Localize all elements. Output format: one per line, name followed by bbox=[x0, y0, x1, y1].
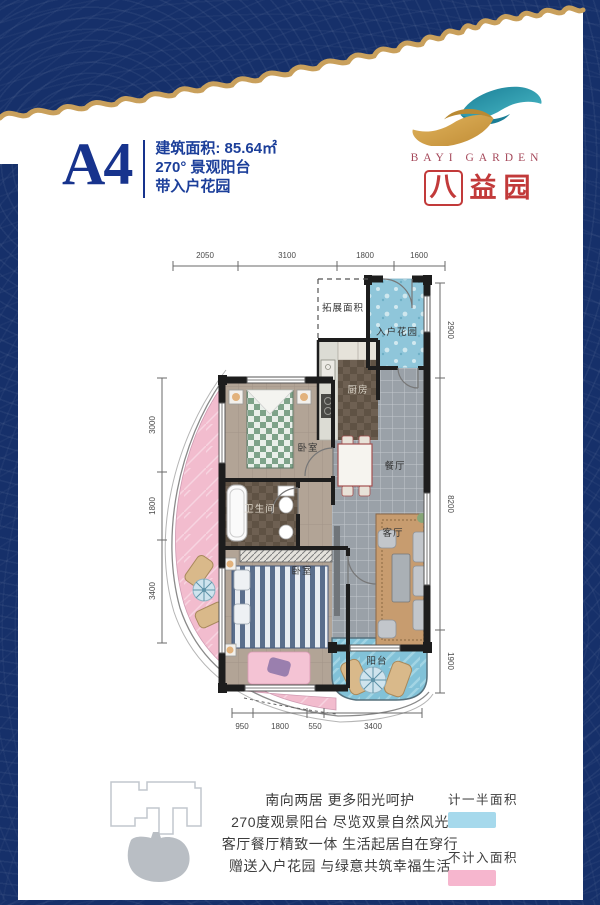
svg-text:550: 550 bbox=[308, 722, 322, 731]
legend-item-half-area: 计一半面积 bbox=[448, 789, 518, 833]
marketing-copy: 南向两居 更多阳光呵护 270度观景阳台 尽览双景自然风光 客厅餐厅精致一体 生… bbox=[205, 789, 475, 877]
brand-name-cn: 八 益 园 bbox=[388, 170, 566, 206]
svg-text:8200: 8200 bbox=[446, 495, 455, 513]
marketing-line-4: 赠送入户花园 与绿意共筑幸福生活 bbox=[205, 855, 475, 877]
brand-name-en: BAYI GARDEN bbox=[388, 152, 566, 164]
legend-swatch-excluded-area bbox=[448, 870, 496, 886]
armchair-icon bbox=[378, 620, 396, 638]
brand-logo: BAYI GARDEN 八 益 园 bbox=[388, 80, 566, 206]
room-label-bathroom: 卫生间 bbox=[244, 503, 276, 515]
floorplan-poster: { "brand": { "name_en": "BAYI GARDEN", "… bbox=[0, 0, 600, 900]
dimension-bottom bbox=[232, 708, 422, 718]
dimension-right-labels: 2900 8200 1900 bbox=[446, 321, 455, 670]
legend-label-half-area: 计一半面积 bbox=[448, 789, 518, 808]
brand-cn-char1: 八 bbox=[424, 170, 463, 206]
unit-area: 建筑面积: 85.64㎡ bbox=[155, 139, 277, 158]
tv-cabinet-icon bbox=[334, 526, 340, 616]
svg-text:950: 950 bbox=[235, 722, 249, 731]
dimension-right bbox=[435, 283, 445, 693]
unit-feature-1: 270° 景观阳台 bbox=[155, 158, 277, 177]
room-label-bedroom-top: 卧室 bbox=[297, 442, 318, 454]
marketing-line-2: 270度观景阳台 尽览双景自然风光 bbox=[205, 811, 475, 833]
brand-cn-char3: 园 bbox=[504, 175, 531, 202]
coffee-table-icon bbox=[392, 554, 410, 602]
svg-text:1800: 1800 bbox=[356, 251, 374, 260]
marketing-line-1: 南向两居 更多阳光呵护 bbox=[205, 789, 475, 811]
room-label-kitchen: 厨房 bbox=[347, 384, 368, 396]
floorplan-drawing: 2050 3100 1800 1600 3000 1800 3400 2900 … bbox=[140, 248, 500, 768]
unit-feature-2: 带入户花园 bbox=[155, 177, 277, 196]
legend-item-excluded-area: 不计入面积 bbox=[448, 847, 518, 891]
svg-text:1800: 1800 bbox=[148, 497, 157, 515]
svg-text:1600: 1600 bbox=[410, 251, 428, 260]
kitchen-dark-floor bbox=[338, 360, 378, 440]
room-label-expand: 拓展面积 bbox=[322, 302, 364, 314]
gold-leaf-icon bbox=[412, 115, 493, 146]
dimension-left bbox=[157, 378, 167, 643]
unit-title-block: A4 建筑面积: 85.64㎡ 270° 景观阳台 带入户花园 bbox=[62, 136, 277, 198]
legend-label-excluded-area: 不计入面积 bbox=[448, 847, 518, 866]
dimension-top bbox=[173, 261, 445, 271]
dimension-top-labels: 2050 3100 1800 1600 bbox=[196, 251, 428, 260]
wardrobe-icon bbox=[240, 550, 332, 562]
svg-text:3000: 3000 bbox=[148, 416, 157, 434]
building-outline bbox=[111, 782, 201, 834]
marketing-line-3: 客厅餐厅精致一体 生活起居自在穿行 bbox=[205, 833, 475, 855]
room-label-dining: 餐厅 bbox=[384, 460, 405, 472]
svg-text:1800: 1800 bbox=[271, 722, 289, 731]
room-label-balcony: 阳台 bbox=[366, 655, 387, 667]
room-label-entry-garden: 入户花园 bbox=[376, 326, 418, 338]
leaf-logo-icon bbox=[402, 80, 552, 146]
svg-text:3100: 3100 bbox=[278, 251, 296, 260]
dimension-bottom-labels: 950 1800 550 3400 bbox=[235, 722, 382, 731]
room-label-bedroom-main: 卧室 bbox=[291, 565, 312, 577]
brand-cn-char2: 益 bbox=[470, 175, 497, 202]
dining-tile-floor bbox=[378, 368, 427, 440]
room-label-living: 客厅 bbox=[382, 527, 403, 539]
svg-text:2900: 2900 bbox=[446, 321, 455, 339]
svg-text:3400: 3400 bbox=[364, 722, 382, 731]
svg-text:3400: 3400 bbox=[148, 582, 157, 600]
area-legend: 计一半面积 不计入面积 bbox=[448, 789, 518, 905]
unit-code: A4 bbox=[62, 136, 131, 193]
unit-details: 建筑面积: 85.64㎡ 270° 景观阳台 带入户花园 bbox=[155, 136, 277, 196]
svg-text:2050: 2050 bbox=[196, 251, 214, 260]
legend-swatch-half-area bbox=[448, 812, 496, 828]
sink-icon bbox=[279, 525, 293, 539]
svg-text:1900: 1900 bbox=[446, 652, 455, 670]
umbrella-icon bbox=[360, 667, 386, 693]
dimension-left-labels: 3000 1800 3400 bbox=[148, 416, 157, 600]
building-key-plan bbox=[95, 778, 215, 890]
divider bbox=[143, 140, 145, 198]
unit-position-blob bbox=[128, 832, 190, 882]
umbrella-icon bbox=[193, 579, 215, 601]
